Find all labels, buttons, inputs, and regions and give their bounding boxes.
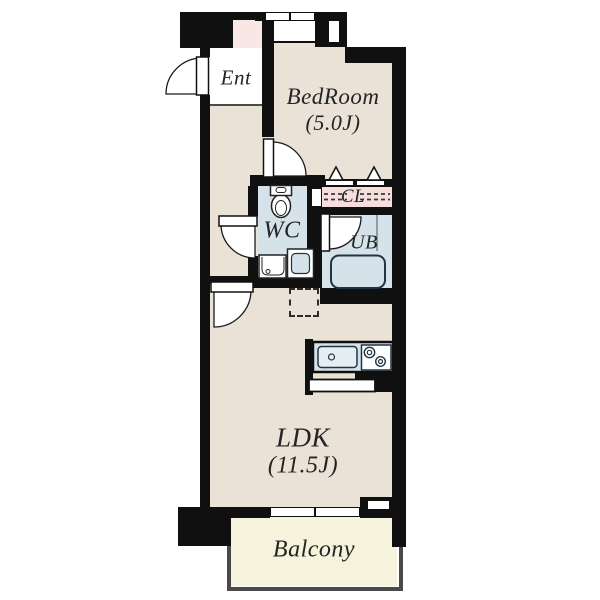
bottom-right-notch [368,501,389,509]
balcony-label: Balcony [273,537,355,564]
wall-right-outer [392,47,406,547]
entrance-door-leaf [197,57,209,95]
balcony-rail-left [227,546,231,591]
floor-plan: Ent BedRoom (5.0J) CL WC UB LDK (11.5J) … [0,0,600,600]
wall-closet-bath [322,207,392,215]
ldk-size-label: (11.5J) [268,453,338,480]
wall-wc-left-lower [248,256,258,278]
bedroom-label: BedRoom [287,84,380,110]
wall-ldk-door-header [210,276,256,284]
wall-left-outer [200,95,210,507]
balcony-window-pane-left [270,507,315,517]
wall-wc-bottom [248,277,322,288]
closet-label: CL [341,186,365,208]
ldk-label: LDK [276,423,330,454]
exterior-cutout [347,12,393,47]
wall-ent-bedroom [262,12,274,137]
wc-label: WC [264,218,301,245]
wall-bath-bottom [320,288,392,304]
wall-entry-jamb [200,48,210,57]
kitchen-black-2 [374,378,393,392]
wall-wc-left-upper [248,186,258,216]
bedroom-size-label: (5.0J) [306,110,361,136]
entrance-label: Ent [221,66,252,91]
bedroom-window-pane-right [290,12,315,21]
wall-bottom-ldk [210,507,270,518]
balcony-window-pane-right [315,507,360,517]
bedroom-window-pane-left [265,12,290,21]
bath-label: UB [350,232,378,255]
balcony-rail-right [399,547,403,591]
wall-wc-bath-notch [312,189,321,206]
entrance-door-arc [166,58,202,94]
balcony-rail-bottom [227,587,403,591]
kitchen-wall-stub [305,339,313,395]
pipe-space-notch [329,21,339,42]
meter-box-pink [233,20,262,48]
refrigerator-space [289,288,319,317]
